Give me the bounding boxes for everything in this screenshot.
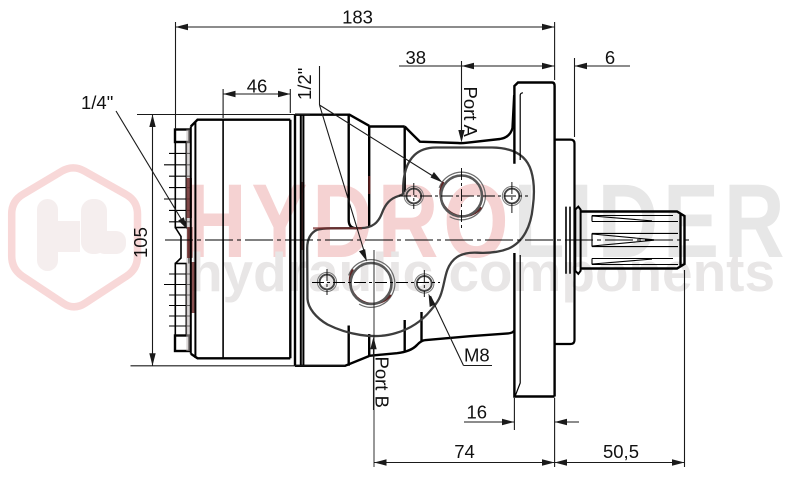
svg-text:1/4": 1/4" xyxy=(81,92,113,113)
svg-text:Port B: Port B xyxy=(372,357,393,408)
svg-text:6: 6 xyxy=(605,47,615,68)
svg-text:105: 105 xyxy=(130,227,151,258)
svg-text:74: 74 xyxy=(454,441,475,462)
svg-text:183: 183 xyxy=(342,7,373,28)
svg-text:46: 46 xyxy=(247,76,268,97)
svg-text:hydraulic components: hydraulic components xyxy=(189,241,775,303)
svg-text:M8: M8 xyxy=(464,345,490,366)
svg-text:50,5: 50,5 xyxy=(603,441,639,462)
svg-text:38: 38 xyxy=(406,47,427,68)
svg-text:16: 16 xyxy=(467,402,488,423)
svg-text:Port A: Port A xyxy=(460,87,481,138)
svg-text:1/2": 1/2" xyxy=(294,68,315,100)
